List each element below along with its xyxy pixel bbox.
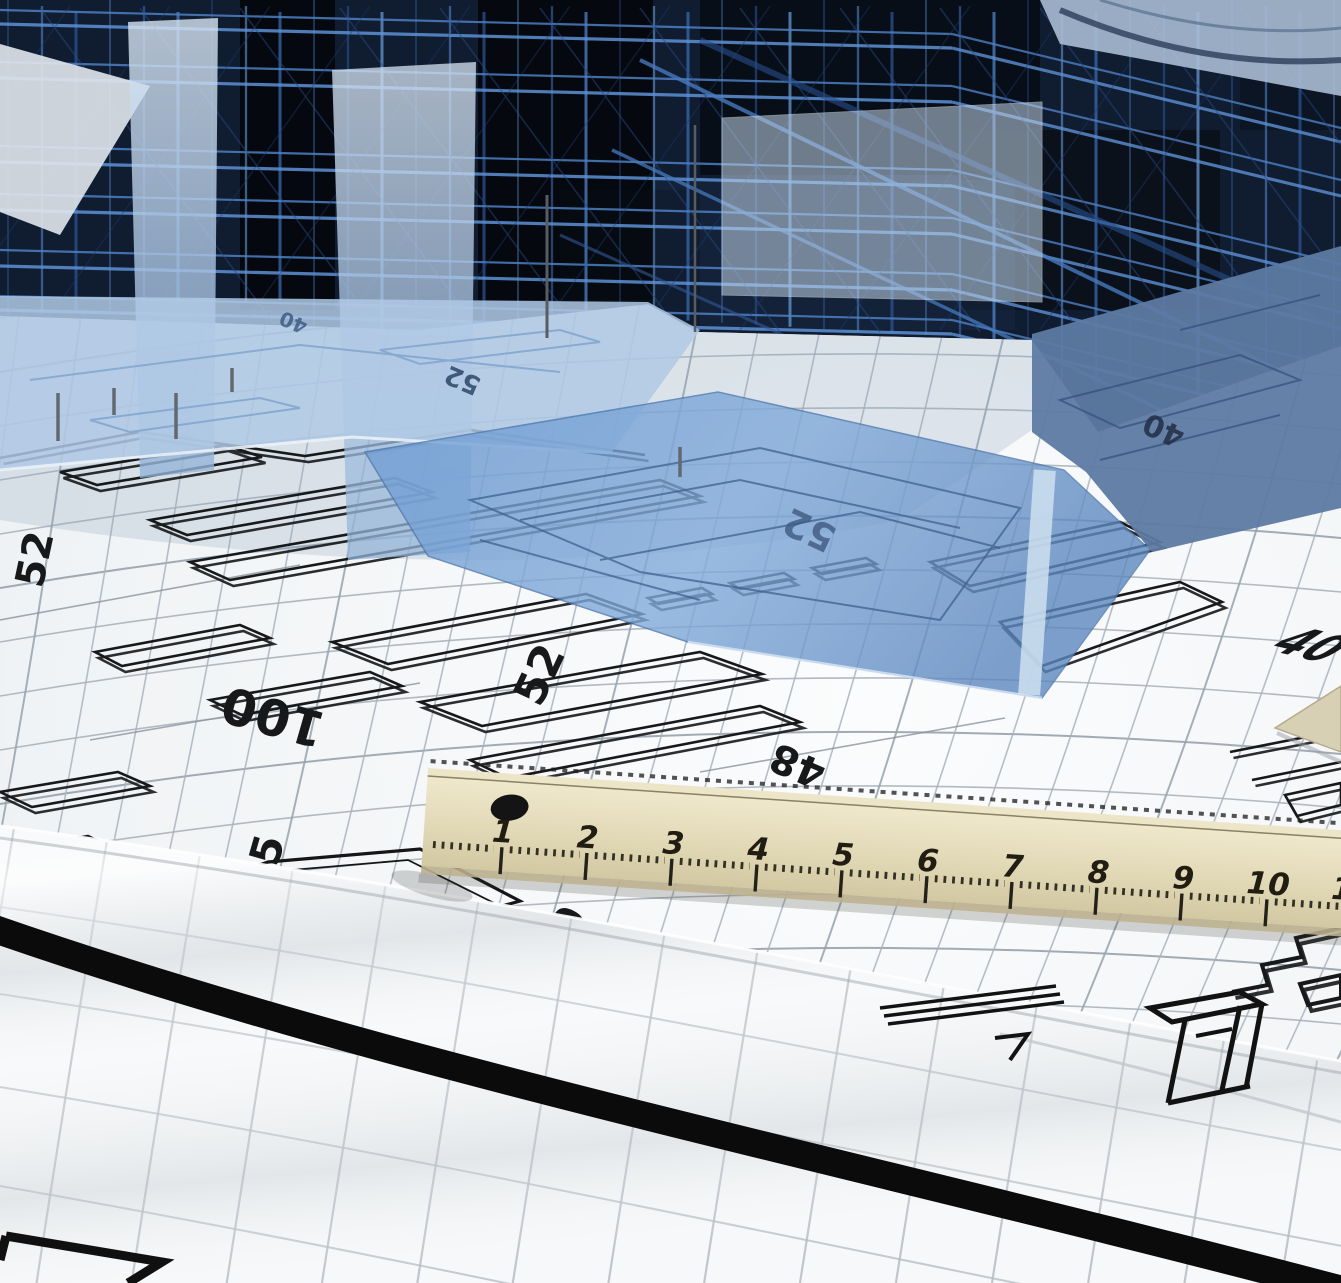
ruler-number-2: 2 [576,819,600,856]
decorative-line [1180,894,1182,921]
ruler-number-8: 8 [1087,854,1111,891]
scene-canvas: 52 100 52 48 5 48 40 [0,0,1341,1283]
ruler-number-9: 9 [1171,860,1195,897]
ruler-number-4: 4 [745,831,770,868]
ruler-number-11: 11 [1330,871,1341,910]
decorative-line [1010,882,1012,909]
decorative-line [925,876,927,903]
blueprint-scene-image: 52 100 52 48 5 48 40 [0,0,1341,1283]
decorative-line [1265,899,1267,926]
decorative-line [755,865,757,892]
decorative-line [500,847,502,874]
decorative-line [1095,888,1097,915]
ruler-number-7: 7 [1001,848,1025,885]
ruler-number-1: 1 [491,814,515,851]
glass-panel-center [722,102,1042,302]
decorative-line [840,870,842,897]
decorative-line [670,859,672,886]
decorative-line [585,853,587,880]
ruler-number-3: 3 [662,825,686,862]
